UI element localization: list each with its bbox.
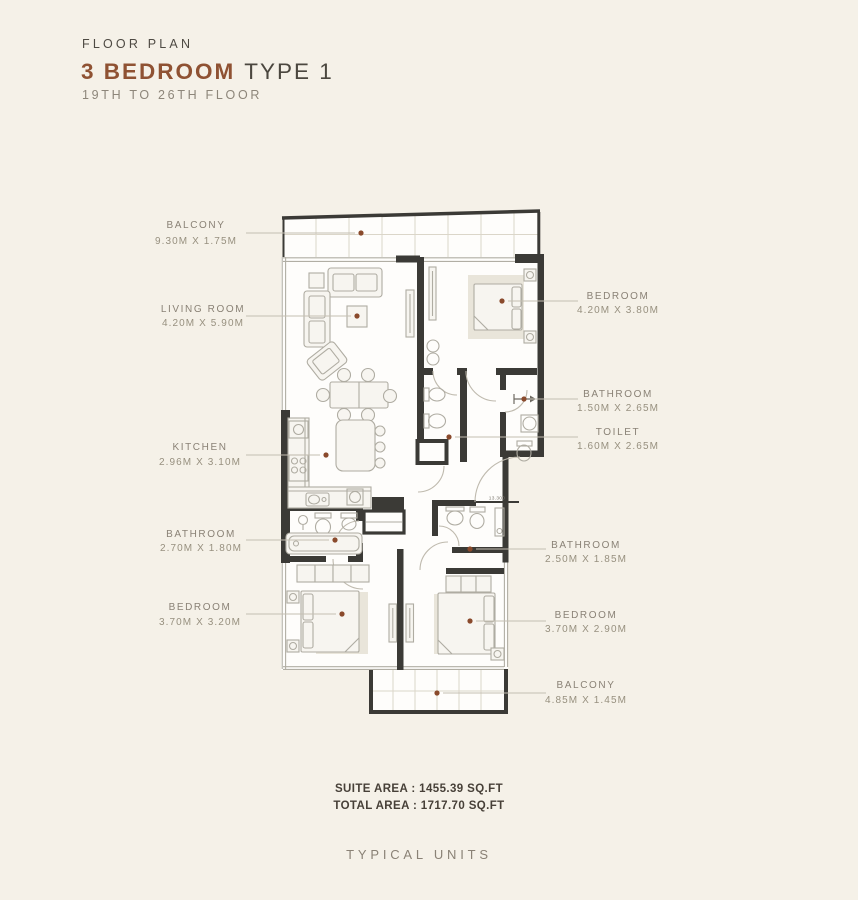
- label-balcony-top-dims: 9.30M X 1.75M: [155, 236, 237, 247]
- room-labels-right: BEDROOM 4.20M X 3.80M BATHROOM 1.50M X 2…: [545, 291, 659, 706]
- label-bedroom-3-dims: 3.70M X 2.90M: [545, 624, 627, 635]
- label-bedroom-3-name: BEDROOM: [555, 610, 618, 621]
- total-area-text: TOTAL AREA : 1717.70 SQ.FT: [333, 800, 504, 812]
- kitchen-furniture: [288, 418, 385, 508]
- page-title-accent: 3 BEDROOM: [81, 59, 235, 84]
- label-bathroom-c-dims: 2.50M X 1.85M: [545, 554, 627, 565]
- page-title-rest: TYPE 1: [244, 59, 334, 84]
- level-marker: 13.300: [489, 496, 506, 502]
- label-bathroom-c-name: BATHROOM: [551, 540, 621, 551]
- label-balcony-bottom-name: BALCONY: [557, 680, 616, 691]
- footer-caption: TYPICAL UNITS: [346, 847, 492, 862]
- label-bedroom-1-name: BEDROOM: [587, 291, 650, 302]
- label-bathroom-right-dims: 1.50M X 2.65M: [577, 403, 659, 414]
- label-toilet-dims: 1.60M X 2.65M: [577, 441, 659, 452]
- label-kitchen-name: KITCHEN: [172, 442, 227, 453]
- floor-plan-page: FLOOR PLAN 3 BEDROOMTYPE 1 19TH TO 26TH …: [0, 0, 858, 900]
- area-summary: SUITE AREA : 1455.39 SQ.FT TOTAL AREA : …: [333, 783, 504, 812]
- label-toilet-name: TOILET: [596, 427, 640, 438]
- page-subtitle: 19TH TO 26TH FLOOR: [82, 88, 262, 102]
- label-bathroom-right-name: BATHROOM: [583, 389, 653, 400]
- label-bathroom-left-name: BATHROOM: [166, 529, 236, 540]
- suite-area-text: SUITE AREA : 1455.39 SQ.FT: [335, 783, 503, 795]
- label-balcony-top-name: BALCONY: [167, 220, 226, 231]
- label-kitchen-dims: 2.96M X 3.10M: [159, 457, 241, 468]
- header: FLOOR PLAN 3 BEDROOMTYPE 1 19TH TO 26TH …: [81, 37, 334, 102]
- breakfast-table: [336, 420, 375, 471]
- room-labels-left: BALCONY 9.30M X 1.75M LIVING ROOM 4.20M …: [155, 220, 245, 628]
- label-balcony-bottom-dims: 4.85M X 1.45M: [545, 695, 627, 706]
- label-living-room-name: LIVING ROOM: [161, 304, 245, 315]
- page-kicker: FLOOR PLAN: [82, 37, 193, 51]
- label-bedroom-1-dims: 4.20M X 3.80M: [577, 305, 659, 316]
- label-bedroom-2-dims: 3.70M X 3.20M: [159, 617, 241, 628]
- label-bedroom-2-name: BEDROOM: [169, 602, 232, 613]
- label-living-room-dims: 4.20M X 5.90M: [162, 318, 244, 329]
- label-bathroom-left-dims: 2.70M X 1.80M: [160, 543, 242, 554]
- floor-plan-drawing: FLOOR PLAN 3 BEDROOMTYPE 1 19TH TO 26TH …: [0, 0, 858, 900]
- page-title: 3 BEDROOMTYPE 1: [81, 59, 334, 84]
